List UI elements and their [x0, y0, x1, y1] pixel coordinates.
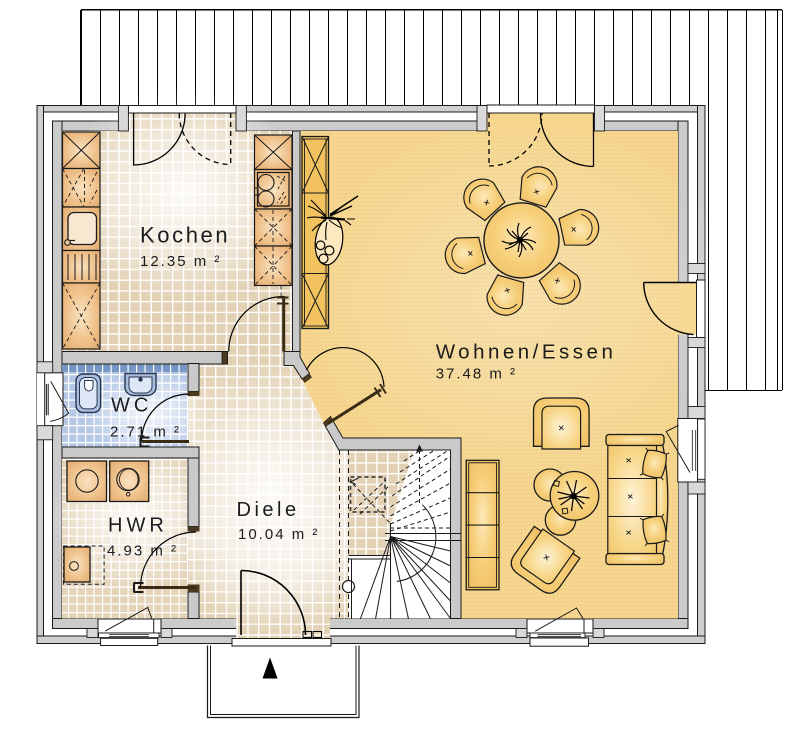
- svg-text:37.48 m ²: 37.48 m ²: [436, 366, 517, 383]
- svg-text:HWR: HWR: [108, 515, 168, 537]
- svg-text:4.93 m ²: 4.93 m ²: [107, 543, 178, 560]
- svg-text:Wohnen/Essen: Wohnen/Essen: [436, 341, 617, 364]
- svg-text:Kochen: Kochen: [140, 223, 230, 248]
- svg-text:Diele: Diele: [237, 499, 300, 521]
- svg-text:WC: WC: [111, 395, 152, 417]
- svg-text:12.35 m ²: 12.35 m ²: [140, 253, 221, 270]
- svg-text:2.71 m ²: 2.71 m ²: [110, 424, 181, 441]
- svg-text:10.04 m ²: 10.04 m ²: [238, 526, 319, 543]
